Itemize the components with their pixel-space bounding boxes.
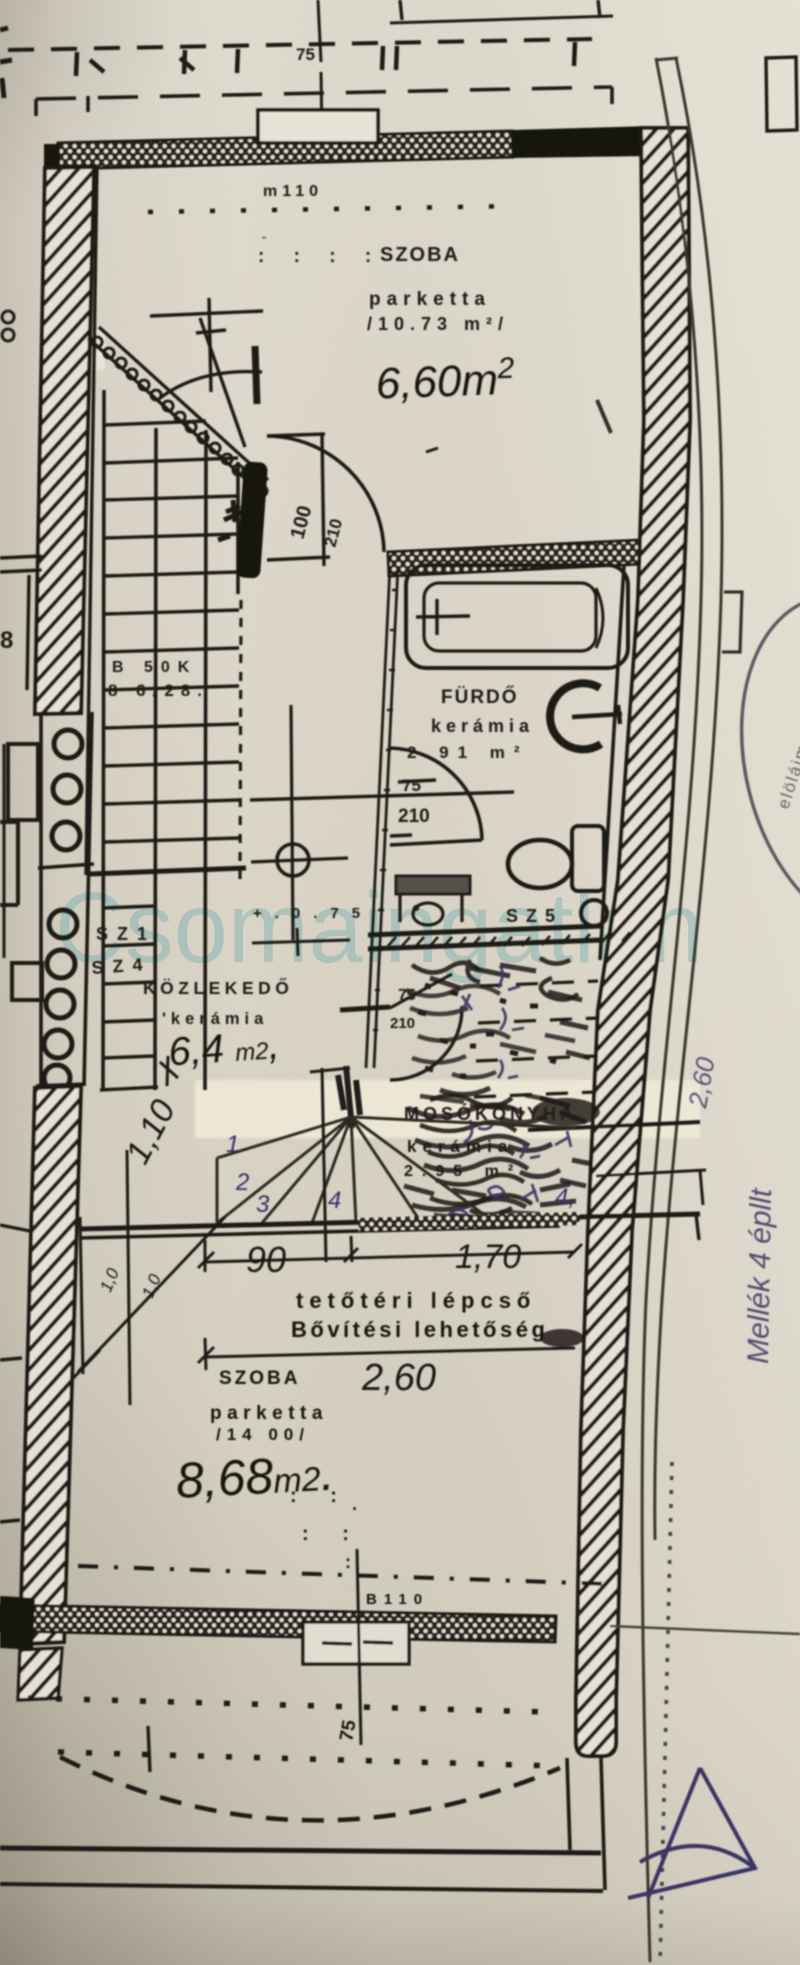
- svg-text:'kerámia: 'kerámia: [162, 1010, 268, 1028]
- svg-text:8 6/28.: 8 6/28.: [108, 681, 209, 700]
- svg-text:75: 75: [336, 1718, 360, 1743]
- svg-text:SZ4: SZ4: [91, 954, 152, 978]
- svg-text:4: 4: [328, 1187, 341, 1214]
- svg-text::: :: [345, 1552, 351, 1572]
- svg-text:KÖZLEKEDŐ: KÖZLEKEDŐ: [143, 977, 293, 998]
- svg-text:B 50K: B 50K: [112, 659, 197, 676]
- svg-text:/14 00/: /14 00/: [216, 1425, 310, 1444]
- svg-text:: :: : :: [290, 1485, 351, 1507]
- svg-text:parketta: parketta: [210, 1403, 328, 1424]
- svg-text:1,70: 1,70: [455, 1238, 521, 1276]
- svg-text:parketta: parketta: [369, 289, 491, 310]
- svg-text:210: 210: [398, 806, 430, 827]
- svg-text:3: 3: [256, 1191, 270, 1218]
- svg-text:4,: 4,: [555, 1184, 575, 1211]
- svg-text:SZOBA: SZOBA: [219, 1368, 301, 1389]
- svg-text:6,60m2: 6,60m2: [375, 352, 516, 409]
- svg-text:2.91 m²: 2.91 m²: [407, 743, 529, 762]
- svg-text:B110: B110: [366, 1591, 429, 1608]
- svg-text:90: 90: [246, 1239, 286, 1280]
- svg-text:SZ1: SZ1: [96, 924, 156, 944]
- svg-text:2,60: 2,60: [361, 1357, 436, 1399]
- svg-text:Mellék 4 épllt: Mellék 4 épllt: [742, 1187, 778, 1364]
- svg-text:: : : :: : : : :: [258, 246, 383, 267]
- svg-text:Bővítési lehetőség: Bővítési lehetőség: [291, 1317, 548, 1342]
- svg-text:+.0.75: +.0.75: [253, 905, 373, 922]
- svg-text:1: 1: [226, 1131, 239, 1158]
- svg-text:SZOBA: SZOBA: [380, 244, 460, 266]
- svg-text:.: .: [352, 1494, 357, 1514]
- svg-text:: :: : :: [302, 1523, 363, 1545]
- svg-text:2: 2: [235, 1169, 249, 1196]
- svg-text:FÜRDŐ: FÜRDŐ: [441, 686, 519, 708]
- svg-text:8: 8: [0, 627, 13, 654]
- svg-text:kerámia: kerámia: [431, 716, 534, 736]
- svg-text:/10.73 m²/: /10.73 m²/: [367, 314, 509, 334]
- svg-text:'': '': [262, 235, 266, 247]
- svg-text:210: 210: [390, 1015, 415, 1032]
- svg-text:m110: m110: [263, 183, 323, 200]
- svg-text:tetőtéri lépcső: tetőtéri lépcső: [296, 1288, 536, 1313]
- svg-text:75: 75: [402, 776, 421, 795]
- svg-text:75: 75: [296, 45, 315, 64]
- svg-text:SZ5: SZ5: [506, 906, 563, 926]
